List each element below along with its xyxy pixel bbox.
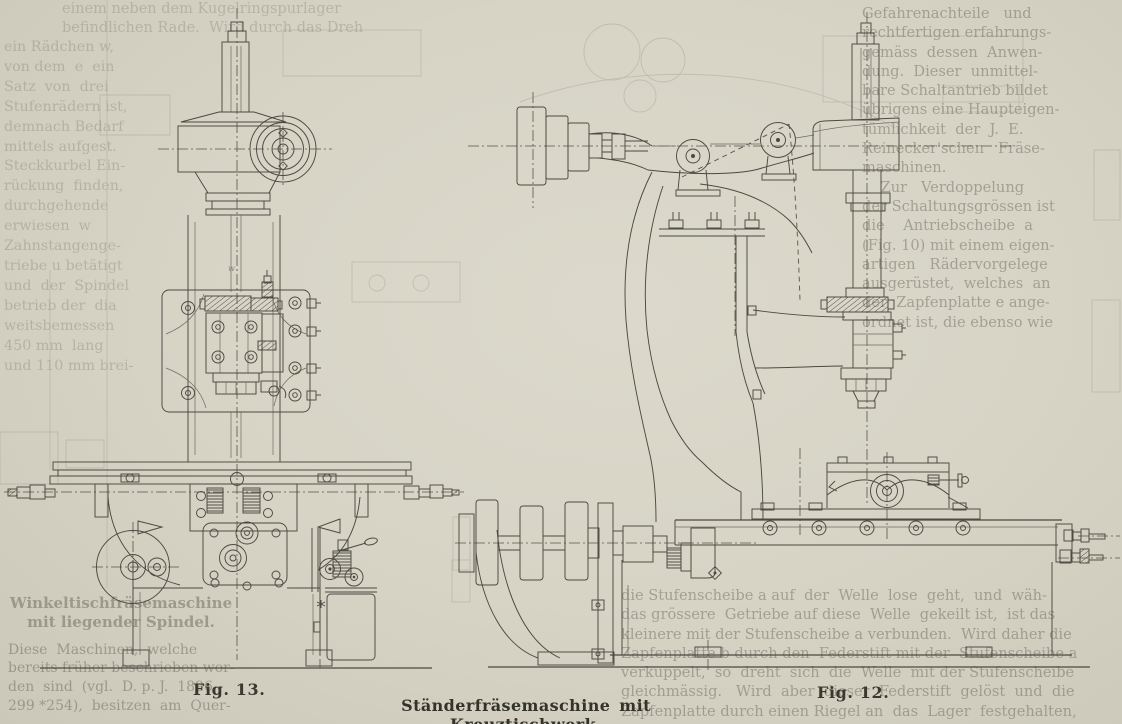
paper-crease-lines (50, 0, 107, 588)
svg-text:w: w (228, 264, 235, 273)
fig13-label: Fig. 13. (193, 680, 265, 699)
bleedthrough-ghost-shapes (0, 24, 1120, 602)
fig12-label: Fig. 12. (817, 683, 889, 702)
fig12-milling-machine-side-view (455, 12, 1120, 672)
figure-caption: Ständerfräsemaschine mit Kreuztischwerk. (330, 696, 722, 724)
fig13-milling-machine-front-view: w (4, 8, 464, 668)
scanned-journal-page: einem neben dem Kugelringspurlager befin… (0, 0, 1122, 724)
technical-drawing-svg: w (0, 0, 1122, 724)
